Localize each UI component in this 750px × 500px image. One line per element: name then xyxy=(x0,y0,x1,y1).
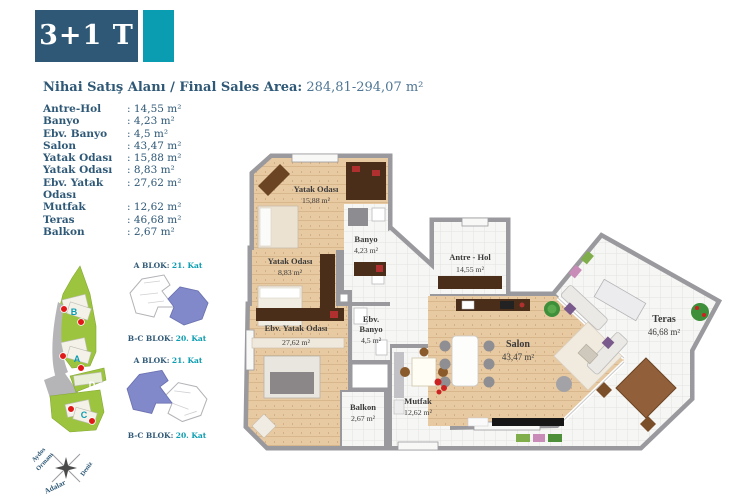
room-area: : 4,23 m² xyxy=(127,115,175,127)
room-list-row: Balkon: 2,67 m² xyxy=(43,226,193,238)
keyplan-2-top-label: A BLOK: 21. Kat xyxy=(118,356,218,365)
room-area: : 12,62 m² xyxy=(127,201,181,213)
compass-label-deniz: Deniz xyxy=(79,461,94,478)
svg-text:27,62 m²: 27,62 m² xyxy=(282,338,311,347)
label-salon: Salon xyxy=(506,339,530,350)
room-area: : 4,5 m² xyxy=(127,128,168,140)
keyplan-1-top-label: A BLOK: 21. Kat xyxy=(118,261,218,270)
label-mutfak: Mutfak xyxy=(404,396,432,406)
site-plan: B A D C xyxy=(40,258,130,440)
room-name: Yatak Odası xyxy=(43,164,127,176)
kitchen-table xyxy=(412,358,436,386)
svg-text:46,68 m²: 46,68 m² xyxy=(648,327,681,337)
room-list-row: Ebv. Banyo: 4,5 m² xyxy=(43,128,193,140)
room-name: Antre-Hol xyxy=(43,103,127,115)
svg-text:12,62 m²: 12,62 m² xyxy=(404,408,433,417)
svg-text:2,67 m²: 2,67 m² xyxy=(351,414,376,423)
room-list: Antre-Hol: 14,55 m² Banyo: 4,23 m² Ebv. … xyxy=(43,103,193,238)
room-list-row: Banyo: 4,23 m² xyxy=(43,115,193,127)
unit-type-badge: 3+1 T xyxy=(35,10,138,62)
room-name: Banyo xyxy=(43,115,127,127)
svg-text:4,5 m²: 4,5 m² xyxy=(361,336,382,345)
cabinet xyxy=(438,276,502,289)
label-ebv-banyo: Ebv. xyxy=(363,314,379,324)
chair xyxy=(420,348,429,357)
label-yatak-odasi-1: Yatak Odası xyxy=(294,184,339,194)
room-name: Balkon xyxy=(43,226,127,238)
wardrobe xyxy=(320,254,335,312)
room-list-row: Ebv. Yatak Odası: 27,62 m² xyxy=(43,177,193,202)
block-marker-d: D xyxy=(89,380,96,390)
planter-boxes xyxy=(516,434,562,442)
keyplan-1 xyxy=(124,273,212,329)
room-list-row: Mutfak: 12,62 m² xyxy=(43,201,193,213)
label-antre-hol: Antre - Hol xyxy=(449,252,491,262)
sales-area-label: Nihai Satış Alanı / Final Sales Area: xyxy=(43,80,302,95)
room-area: : 43,47 m² xyxy=(127,140,181,152)
keyplan-2-bottom-label: B-C BLOK: 20. Kat xyxy=(114,431,220,440)
entrance-door xyxy=(462,218,488,226)
room-list-row: Salon: 43,47 m² xyxy=(43,140,193,152)
shower xyxy=(348,208,368,226)
label-teras: Teras xyxy=(652,314,676,325)
room-area: : 2,67 m² xyxy=(127,226,175,238)
apartment-floor-plan: Yatak Odası 15,88 m² Banyo 4,23 m² Yatak… xyxy=(228,138,750,488)
block-marker-c: C xyxy=(81,410,88,420)
dining-table xyxy=(452,336,478,386)
block-marker-a: A xyxy=(74,354,81,364)
chair xyxy=(400,367,410,377)
compass-label-adalar: Adalar xyxy=(43,477,68,495)
keyplan-2 xyxy=(121,368,211,426)
svg-text:14,55 m²: 14,55 m² xyxy=(456,265,485,274)
plant xyxy=(691,303,709,321)
keyplan-1-bottom-label: B-C BLOK: 20. Kat xyxy=(114,334,220,343)
room-area: : 8,83 m² xyxy=(127,164,175,176)
room-list-row: Yatak Odası: 8,83 m² xyxy=(43,164,193,176)
room-name: Yatak Odası xyxy=(43,152,127,164)
room-area: : 14,55 m² xyxy=(127,103,181,115)
sink xyxy=(372,208,385,221)
svg-text:8,83 m²: 8,83 m² xyxy=(278,268,303,277)
svg-text:43,47 m²: 43,47 m² xyxy=(502,352,535,362)
keyplan-1-highlight xyxy=(168,287,208,325)
svg-text:15,88 m²: 15,88 m² xyxy=(302,196,331,205)
room-name: Ebv. Yatak Odası xyxy=(43,177,127,202)
label-ebv-yatak-odasi: Ebv. Yatak Odası xyxy=(265,323,328,333)
floor-plan-sheet: 3+1 T Nihai Satış Alanı / Final Sales Ar… xyxy=(0,0,750,500)
svg-text:Banyo: Banyo xyxy=(359,324,382,334)
room-list-row: Antre-Hol: 14,55 m² xyxy=(43,103,193,115)
keyplan-2-highlight xyxy=(127,370,172,413)
room-list-row: Teras: 46,68 m² xyxy=(43,214,193,226)
room-area: : 27,62 m² xyxy=(127,177,181,202)
tv-unit xyxy=(492,418,564,426)
room-area: : 46,68 m² xyxy=(127,214,181,226)
armchair xyxy=(556,376,572,392)
accent-square xyxy=(143,10,174,62)
svg-text:4,23 m²: 4,23 m² xyxy=(354,246,379,255)
room-name: Ebv. Banyo xyxy=(43,128,127,140)
room-area: : 15,88 m² xyxy=(127,152,181,164)
label-balkon: Balkon xyxy=(350,402,376,412)
room-name: Mutfak xyxy=(43,201,127,213)
label-yatak-odasi-2: Yatak Odası xyxy=(268,256,313,266)
room-list-row: Yatak Odası: 15,88 m² xyxy=(43,152,193,164)
room-name: Teras xyxy=(43,214,127,226)
sales-area-line: Nihai Satış Alanı / Final Sales Area: 28… xyxy=(43,80,463,95)
compass: Aydos Ormanı Deniz Adalar xyxy=(22,440,104,500)
block-marker-b: B xyxy=(71,307,78,317)
room-name: Salon xyxy=(43,140,127,152)
sales-area-value: 284,81-294,07 m² xyxy=(306,80,423,95)
label-banyo: Banyo xyxy=(354,234,377,244)
